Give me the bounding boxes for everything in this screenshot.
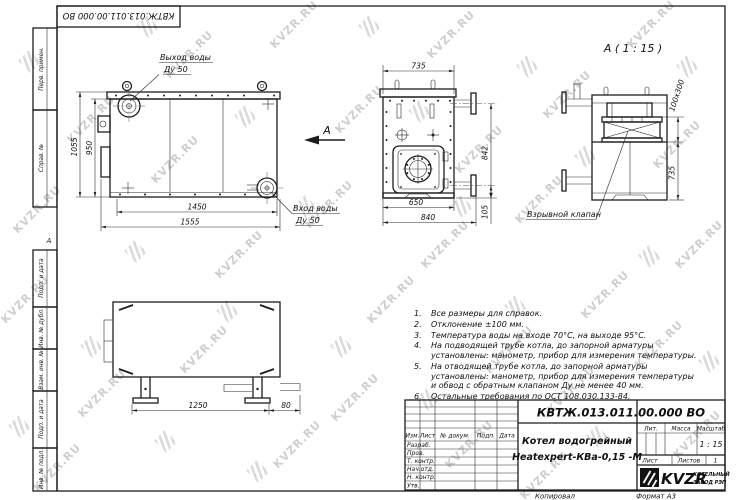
technical-notes: 1.Все размеры для справок. 2.Отклонение … <box>414 309 706 403</box>
outlet-label: Выход воды <box>160 53 211 62</box>
tb-name-line1: Котел водогрейный <box>522 436 632 447</box>
footer-format: Формат А3 <box>636 493 676 500</box>
tb-sheets-label: Листов <box>677 458 701 465</box>
explosion-valve-label: Взрывной клапан <box>527 210 601 219</box>
stamp-label-inv-podl: Инв. № подл. <box>39 449 45 489</box>
inlet-label: Вход воды <box>293 204 338 213</box>
stamp-label-sprav-no: Справ. № <box>39 144 45 172</box>
note-text: Все размеры для справок. <box>431 309 699 319</box>
note-text: Отклонение ±100 мм. <box>431 320 699 330</box>
stamp-label-podp-data-1: Подп. и дата <box>39 258 45 298</box>
tb-row-nkontr: Н. контр. <box>407 474 436 481</box>
dim-1555: 1555 <box>180 218 199 227</box>
tb-row-utv: Утв. <box>407 483 420 490</box>
dim-1450: 1450 <box>187 203 206 212</box>
dim-950: 950 <box>85 141 94 156</box>
tb-col-data: Дата <box>498 433 515 440</box>
zone-letter: А <box>46 237 52 245</box>
tb-logo-sub1: КОТЕЛЬНЫЙ <box>693 470 730 478</box>
drawing-canvas: КВТЖ.013.011.00.000 ВО Перв. примен. Спр… <box>0 0 750 500</box>
sheet-footer: Копировал Формат А3 <box>535 493 676 500</box>
tb-scale-label: Масштаб <box>697 426 726 433</box>
title-block: Изм. Лист № докум. Подп. Дата Разраб. Пр… <box>405 400 730 490</box>
stamp-label-vzam-inv: Взам. инв. № <box>39 350 45 389</box>
tb-row-nachotd: Нач.отд. <box>407 466 434 473</box>
tb-row-tkontr: Т. контр. <box>407 458 435 465</box>
note-number: 3. <box>414 331 431 341</box>
note-number: 1. <box>414 309 431 319</box>
note-item: 6.Остальные требования по ОСТ 108.030.13… <box>414 392 706 402</box>
note-item: 4.На подводящей трубе котла, до запорной… <box>414 341 706 361</box>
dim-105: 105 <box>481 205 490 220</box>
drawing-sheet: KVZR.RUKVZR.RUKVZR.RUKVZR.RUKVZR.RUKVZR.… <box>0 0 750 500</box>
note-item: 1.Все размеры для справок. <box>414 309 706 319</box>
view-arrow-letter: А <box>322 124 331 137</box>
footer-copied: Копировал <box>535 493 576 500</box>
tb-col-izm: Изм. <box>405 433 419 440</box>
dim-1250: 1250 <box>188 401 207 410</box>
dim-80: 80 <box>281 401 291 410</box>
stamp-label-perv-primen: Перв. примен. <box>39 47 45 91</box>
tb-lit-label: Лит. <box>643 426 658 433</box>
tb-col-podp: Подп. <box>477 433 495 440</box>
kvzr-logo <box>640 468 659 487</box>
tb-code: КВТЖ.013.011.00.000 ВО <box>537 406 705 420</box>
tb-scale-value: 1 : 15 <box>699 440 722 449</box>
tb-col-list: Лист <box>419 433 436 440</box>
outlet-dn: Ду 50 <box>163 65 188 74</box>
front-view: 1055 950 1450 1555 Выход воды Ду 50 Вход… <box>70 53 345 231</box>
tb-name-line2: Heatexpert-КВа-0,15 -М <box>512 452 642 463</box>
dim-735-rear: 735 <box>668 166 677 181</box>
note-item: 2.Отклонение ±100 мм. <box>414 320 706 330</box>
note-number: 6. <box>414 392 431 402</box>
stamp-label-inv-dubl: Инв. № дубл. <box>39 308 45 348</box>
note-text: Остальные требования по ОСТ 108.030.133-… <box>431 392 699 402</box>
note-text: На подводящей трубе котла, до запорной а… <box>431 341 699 361</box>
note-item: 5.На отводящей трубе котла, до запорной … <box>414 362 706 391</box>
tb-row-razrab: Разраб. <box>407 442 431 449</box>
rear-view: А ( 1 : 15 ) <box>526 42 686 220</box>
top-code-rotated: КВТЖ.013.011.00.000 ВО <box>62 10 174 20</box>
tb-col-dokum: № докум. <box>439 433 470 440</box>
dim-840: 840 <box>421 213 436 222</box>
note-number: 5. <box>414 362 431 391</box>
stamp-label-podp-data-2: Подп. и дата <box>39 399 45 439</box>
note-text: Температура воды на входе 70°С, на выход… <box>431 331 699 341</box>
tb-row-prov: Пров. <box>407 450 425 457</box>
dim-1055: 1055 <box>70 137 79 156</box>
note-number: 2. <box>414 320 431 330</box>
dim-100x300: 100х300 <box>667 78 686 112</box>
inlet-dn: Ду 50 <box>295 216 320 225</box>
dim-842: 842 <box>481 146 490 161</box>
bottom-view: 1250 80 <box>104 302 300 415</box>
tb-logo-sub2: ЗАВОД РЭП <box>693 480 727 486</box>
note-number: 4. <box>414 341 431 361</box>
note-item: 3.Температура воды на входе 70°С, на вых… <box>414 331 706 341</box>
rear-view-title: А ( 1 : 15 ) <box>603 42 662 55</box>
tb-sheets-value: 1 <box>714 458 718 465</box>
dim-735-side: 735 <box>411 62 426 71</box>
tb-mass-label: Масса <box>671 426 690 433</box>
note-text: На отводящей трубе котла, до запорной ар… <box>431 362 699 391</box>
dim-650: 650 <box>409 198 424 207</box>
side-view: 735 842 105 650 840 <box>380 62 497 227</box>
tb-sheet-label: Лист <box>641 458 658 465</box>
